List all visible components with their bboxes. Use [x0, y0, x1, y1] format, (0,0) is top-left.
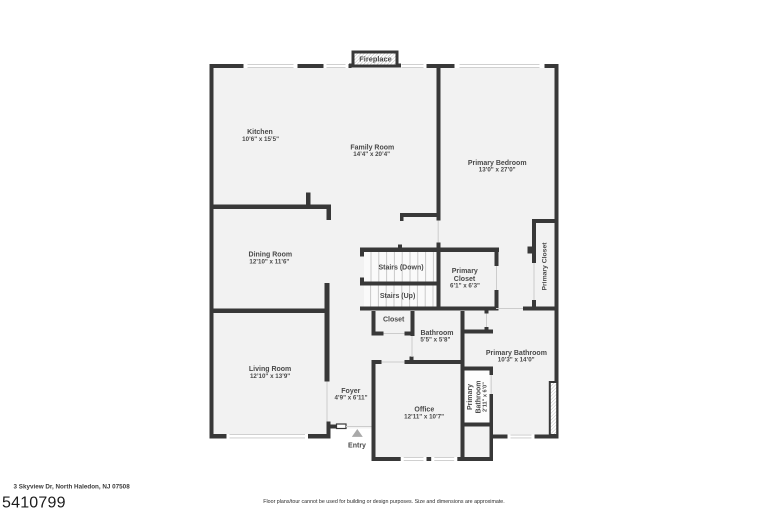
svg-text:Stairs (Down): Stairs (Down): [378, 264, 423, 271]
svg-text:6’1" x 6’3": 6’1" x 6’3": [450, 283, 480, 290]
svg-text:12’10" x 11’6": 12’10" x 11’6": [249, 258, 289, 265]
svg-text:5’5" x 5’8": 5’5" x 5’8": [420, 336, 450, 343]
svg-text:Primary: Primary: [467, 384, 474, 410]
svg-text:Fireplace: Fireplace: [359, 55, 391, 64]
svg-text:4’9" x 6’11": 4’9" x 6’11": [334, 395, 367, 402]
svg-text:Closet: Closet: [383, 317, 405, 324]
svg-text:Entry: Entry: [348, 443, 366, 450]
svg-text:14’4" x 20’4": 14’4" x 20’4": [353, 151, 390, 158]
svg-text:Primary Closet: Primary Closet: [541, 242, 548, 291]
svg-text:2’11" x 6’0": 2’11" x 6’0": [482, 382, 488, 412]
svg-text:10’3" x 14’0": 10’3" x 14’0": [498, 357, 535, 364]
svg-text:Kitchen: Kitchen: [247, 129, 273, 136]
svg-text:Living Room: Living Room: [249, 366, 291, 373]
svg-text:3 Skyview Dr, North Haledon, N: 3 Skyview Dr, North Haledon, NJ 07508: [14, 484, 131, 491]
svg-text:Floor plans/tour cannot be use: Floor plans/tour cannot be used for buil…: [263, 499, 504, 505]
svg-text:10’6" x 15’5": 10’6" x 15’5": [242, 136, 279, 143]
svg-text:13’0" x 27’0": 13’0" x 27’0": [479, 166, 516, 173]
svg-text:5410799: 5410799: [2, 495, 66, 512]
svg-text:12’11" x 10’7": 12’11" x 10’7": [404, 413, 444, 420]
svg-text:Primary: Primary: [452, 268, 478, 275]
svg-text:12’10" x 13’9": 12’10" x 13’9": [250, 373, 290, 380]
svg-text:Stairs (Up): Stairs (Up): [380, 293, 415, 300]
